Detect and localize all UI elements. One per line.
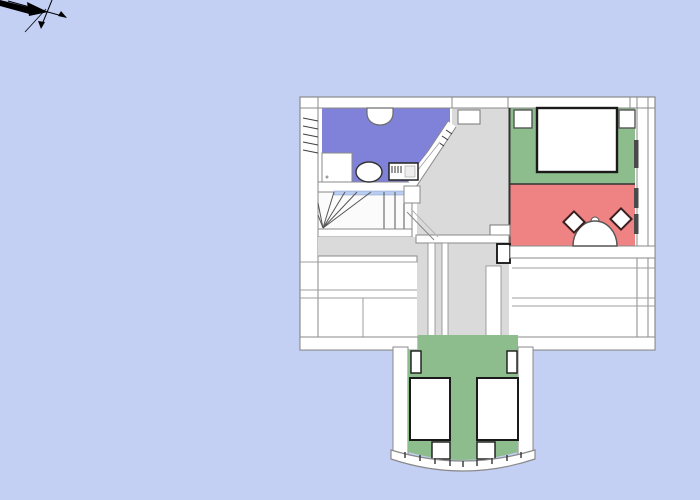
red-room-bottom-wall [510, 246, 655, 258]
stair-edge-wall [318, 229, 412, 237]
kids-room-doorway-floor [418, 335, 518, 350]
kids-room-wall-left [393, 347, 408, 455]
hall-cabinet [458, 110, 480, 124]
stair-handrail [334, 191, 412, 195]
bathroom-bottom-wall [318, 182, 417, 192]
double-bed [537, 108, 617, 172]
staircase [318, 186, 420, 262]
shower-drain [326, 176, 329, 179]
nightstand [411, 351, 421, 373]
stair-closet [404, 186, 420, 203]
floorplan-canvas[interactable] [0, 0, 700, 500]
nightstand [619, 110, 635, 128]
corridor-cabinet [497, 244, 510, 263]
sink-fixture [367, 108, 393, 125]
landing-edge-wall [318, 256, 417, 262]
nightstand [507, 351, 517, 373]
toilet-fixture [356, 162, 382, 182]
floorplan-drawing [0, 0, 700, 500]
single-bed [410, 378, 450, 440]
nightstand [514, 110, 532, 128]
single-bed [477, 378, 518, 440]
stair-landing [318, 237, 417, 256]
kids-room-wall-right [518, 347, 533, 455]
hall-cabinet [490, 225, 510, 236]
stool [477, 442, 495, 459]
stool [432, 442, 450, 459]
